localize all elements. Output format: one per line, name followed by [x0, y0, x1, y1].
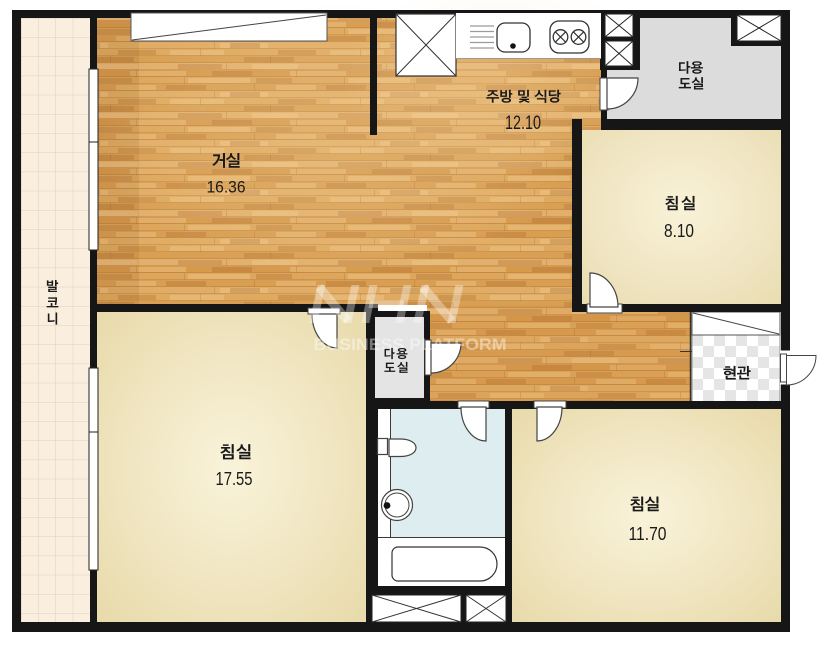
svg-text:BUSINESS PLATFORM: BUSINESS PLATFORM: [314, 336, 507, 354]
svg-text:16.36: 16.36: [207, 179, 246, 197]
svg-text:12.10: 12.10: [505, 113, 541, 134]
svg-text:8.10: 8.10: [664, 221, 694, 241]
svg-text:17.55: 17.55: [216, 469, 253, 489]
svg-text:11.70: 11.70: [629, 524, 667, 544]
